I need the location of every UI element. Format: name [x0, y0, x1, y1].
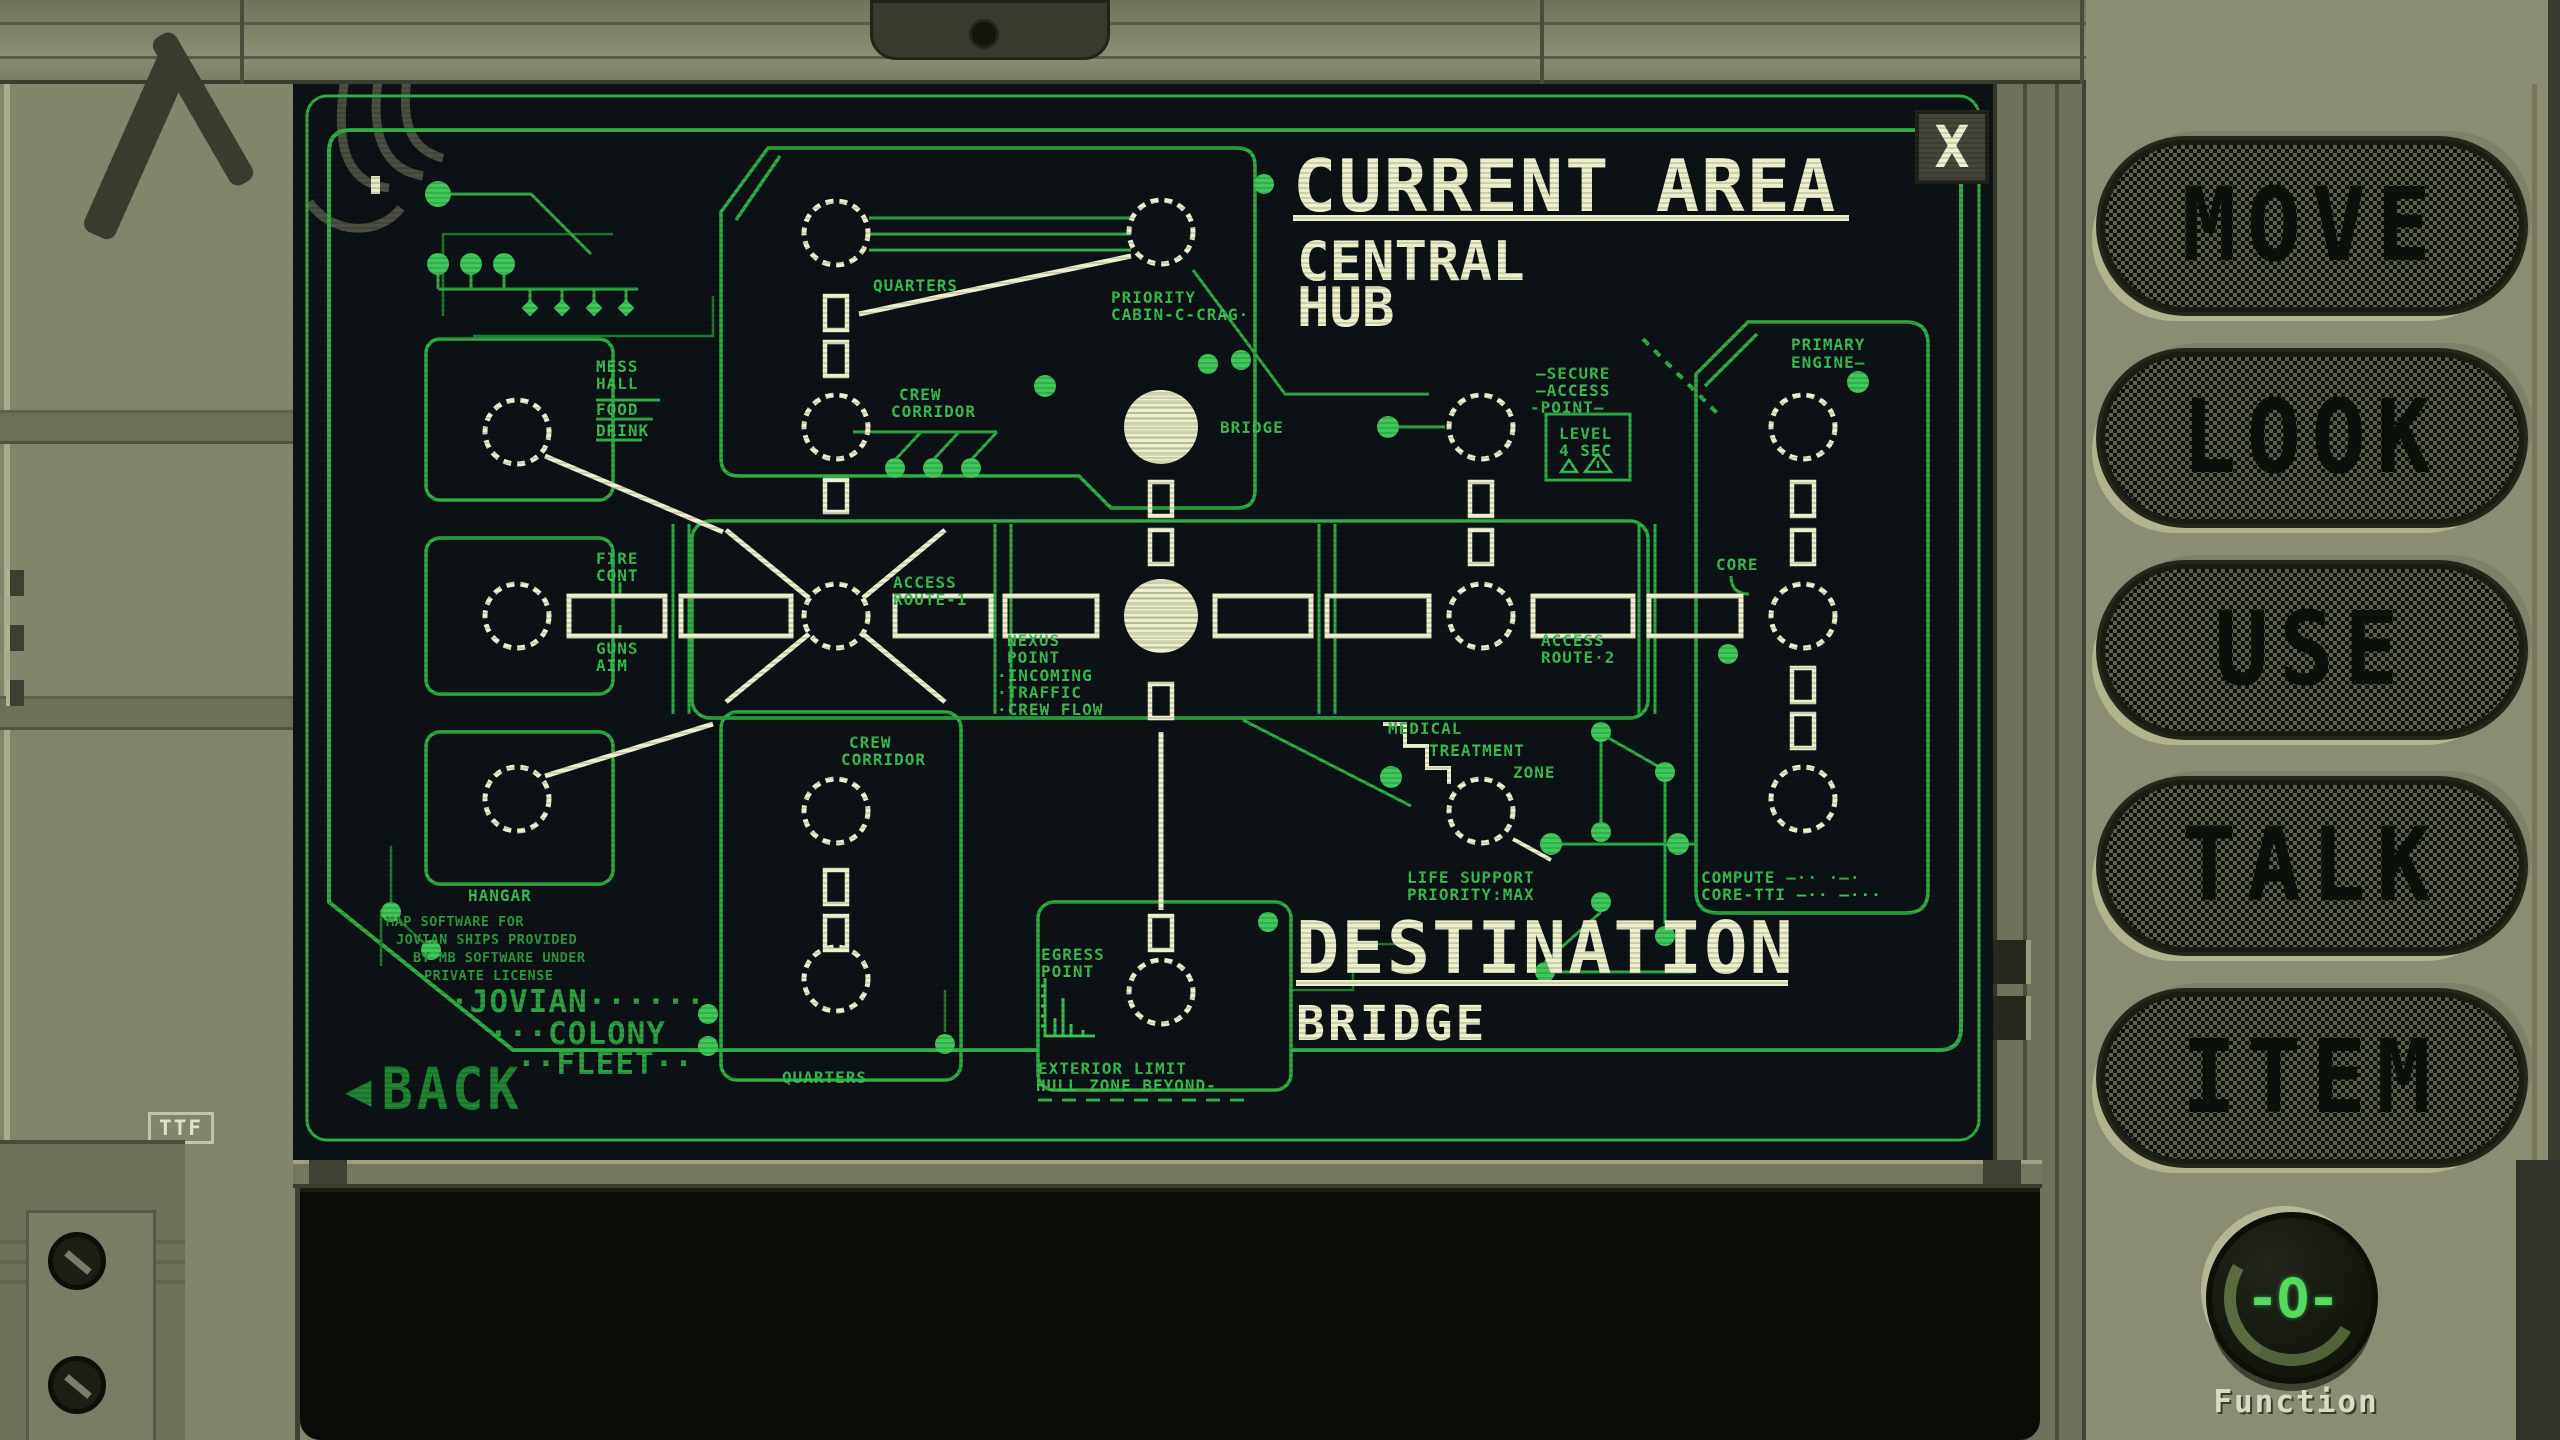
bolt-icon	[969, 19, 999, 49]
label-life-2: PRIORITY:MAX	[1407, 885, 1535, 904]
label-nexus-5: ·CREW FLOW	[997, 700, 1103, 719]
label-compute-2: CORE-TTI —·· —···	[1701, 885, 1882, 904]
panel-seam	[2080, 0, 2084, 84]
credit-line-2: JOVIAN SHIPS PROVIDED	[396, 932, 577, 948]
node-secure-access[interactable]	[1449, 395, 1513, 459]
node-medical[interactable]	[1449, 779, 1513, 843]
screw-icon	[48, 1232, 106, 1290]
function-dial[interactable]: -O-	[2206, 1212, 2378, 1384]
node-access-route-2[interactable]	[1449, 584, 1513, 648]
screw-slot	[64, 1250, 91, 1275]
label-level-2: 4 SEC	[1559, 441, 1612, 460]
credit-line-4: PRIVATE LICENSE	[424, 968, 553, 984]
close-button[interactable]: X	[1915, 110, 1989, 184]
map-screen: QUARTERS PRIORITY CABIN-C-CRAG· MESS HAL…	[293, 84, 1993, 1160]
back-arrow-icon: ◀	[345, 1065, 372, 1116]
stud-greeble	[6, 625, 24, 651]
label-guns-2: AIM	[596, 656, 628, 675]
panel-seam	[240, 0, 244, 84]
label-hangar: HANGAR	[468, 886, 532, 905]
look-button[interactable]: LOOK	[2100, 352, 2524, 524]
pipe-greeble	[870, 0, 1110, 60]
stud-greeble	[6, 570, 24, 596]
panel-seam	[1540, 0, 1544, 84]
game-screen: TTF MOVE LOOK USE TALK ITEM -O- Function	[0, 0, 2560, 1440]
stud-greeble	[6, 680, 24, 706]
node-priority-cabin[interactable]	[1129, 200, 1193, 264]
label-secure-3: -POINT—	[1530, 398, 1604, 417]
screw-icon	[48, 1356, 106, 1414]
message-panel	[300, 1188, 2040, 1440]
label-fire-2: CONT	[596, 566, 639, 585]
label-nexus-2: POINT	[1007, 648, 1060, 667]
label-exterior-2: HULL ZONE BEYOND-	[1036, 1076, 1217, 1095]
back-button[interactable]: ◀ BACK	[345, 1060, 523, 1120]
label-route2-2: ROUTE·2	[1541, 648, 1615, 667]
fleet-line-1: ·JOVIAN······	[450, 984, 706, 1020]
connector-greeble	[1991, 996, 2031, 1040]
destination-name: BRIDGE	[1296, 996, 1487, 1052]
label-core: CORE	[1716, 555, 1759, 574]
label-mess-3: FOOD	[596, 400, 639, 419]
connector-greeble	[1991, 940, 2031, 984]
move-button-label: MOVE	[2182, 167, 2441, 285]
node-access-route-1[interactable]	[804, 584, 868, 648]
node-hangar[interactable]	[485, 767, 549, 831]
label-engine-1: PRIMARY	[1791, 335, 1865, 354]
ridge-greeble	[1983, 1160, 2021, 1184]
destination-heading: DESTINATION	[1296, 906, 1795, 990]
talk-button[interactable]: TALK	[2100, 780, 2524, 952]
item-button[interactable]: ITEM	[2100, 992, 2524, 1164]
label-medical-2: TREATMENT	[1429, 741, 1525, 760]
node-core[interactable]	[1771, 584, 1835, 648]
function-dial-label: Function	[2196, 1384, 2396, 1420]
node-quarters-bottom[interactable]	[804, 947, 868, 1011]
machinery-left: TTF	[0, 84, 300, 1440]
label-medical-1: MEDICAL	[1388, 719, 1462, 738]
label-egress-2: POINT	[1041, 962, 1094, 981]
label-route1-2: ROUTE-1	[893, 590, 967, 609]
panel-corner	[2516, 1160, 2560, 1440]
use-button[interactable]: USE	[2100, 564, 2524, 736]
node-bridge-destination[interactable]	[1124, 390, 1198, 464]
use-button-label: USE	[2215, 591, 2410, 709]
label-crew-upper-2: CORRIDOR	[891, 402, 976, 421]
ridge-greeble	[309, 1160, 347, 1184]
panel-line	[2055, 84, 2059, 1440]
label-quarters-bottom: QUARTERS	[782, 1068, 867, 1087]
label-engine-2: ENGINE—	[1791, 353, 1865, 372]
panel-line	[2532, 84, 2537, 1164]
panel-ridge	[293, 1160, 2042, 1188]
heading-underline	[1293, 215, 1849, 221]
panel-band	[0, 410, 300, 444]
close-icon: X	[1935, 113, 1970, 181]
node-nexus-current[interactable]	[1124, 579, 1198, 653]
panel-band	[0, 696, 300, 730]
look-button-label: LOOK	[2182, 379, 2441, 497]
talk-button-label: TALK	[2182, 807, 2441, 925]
label-bridge: BRIDGE	[1220, 418, 1284, 437]
node-quarters-top[interactable]	[804, 201, 868, 265]
dial-symbol-icon: -O-	[2212, 1218, 2372, 1378]
node-compute-core[interactable]	[1771, 767, 1835, 831]
label-crew-lower-2: CORRIDOR	[841, 750, 926, 769]
label-quarters-top: QUARTERS	[873, 276, 958, 295]
credit-line-3: BY MB SOFTWARE UNDER	[413, 950, 586, 966]
screw-slot	[64, 1374, 91, 1399]
node-mess-hall[interactable]	[485, 400, 549, 464]
node-fire-control[interactable]	[485, 584, 549, 648]
ship-map: QUARTERS PRIORITY CABIN-C-CRAG· MESS HAL…	[293, 84, 1993, 1160]
heading-underline	[1296, 980, 1788, 986]
node-crew-corridor-lower[interactable]	[804, 779, 868, 843]
fleet-line-3: ··FLEET··	[517, 1046, 694, 1082]
node-primary-engine[interactable]	[1771, 395, 1835, 459]
label-priority-2: CABIN-C-CRAG·	[1111, 305, 1249, 324]
credit-line-1: MAP SOFTWARE FOR	[386, 914, 524, 930]
label-mess-2: HALL	[596, 374, 639, 393]
current-area-name-2: HUB	[1297, 276, 1395, 339]
label-medical-3: ZONE	[1513, 763, 1556, 782]
node-crew-corridor-upper[interactable]	[804, 395, 868, 459]
item-button-label: ITEM	[2182, 1019, 2441, 1137]
move-button[interactable]: MOVE	[2100, 140, 2524, 312]
back-button-label: BACK	[382, 1056, 523, 1123]
label-mess-4: DRINK	[596, 421, 649, 440]
